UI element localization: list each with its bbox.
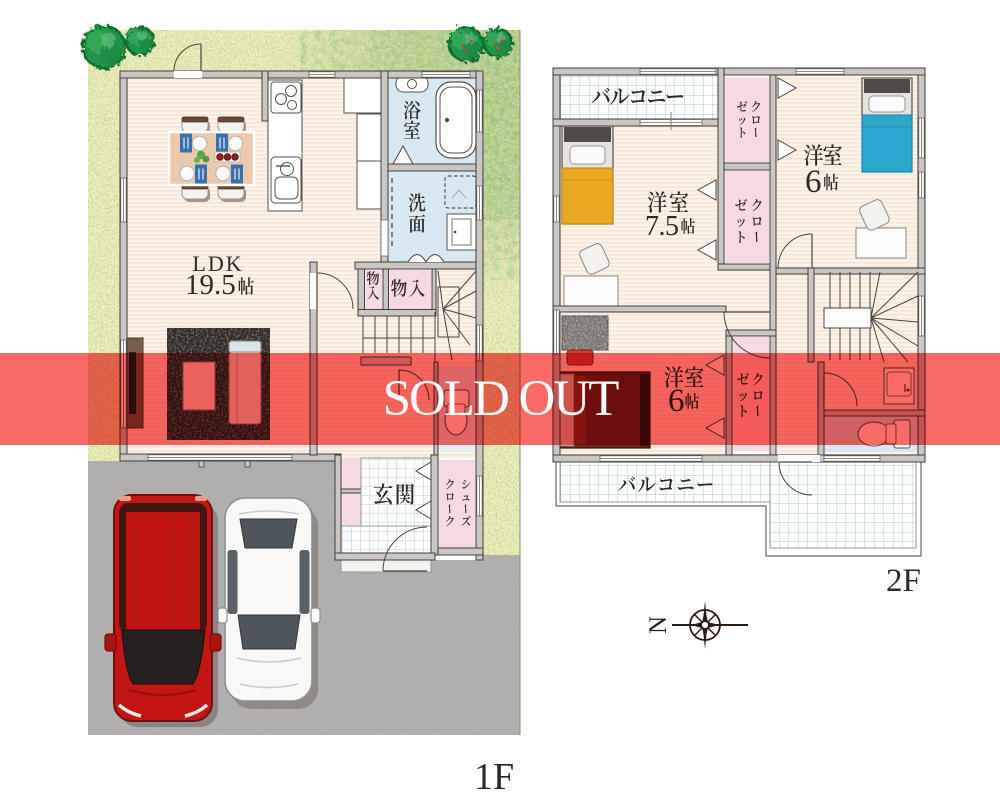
svg-text:2F: 2F [886,563,921,599]
svg-text:7.5: 7.5 [645,211,679,242]
svg-text:6: 6 [805,164,822,200]
svg-text:N: N [645,616,672,634]
svg-text:19.5: 19.5 [185,269,236,301]
svg-text:1F: 1F [474,756,514,798]
